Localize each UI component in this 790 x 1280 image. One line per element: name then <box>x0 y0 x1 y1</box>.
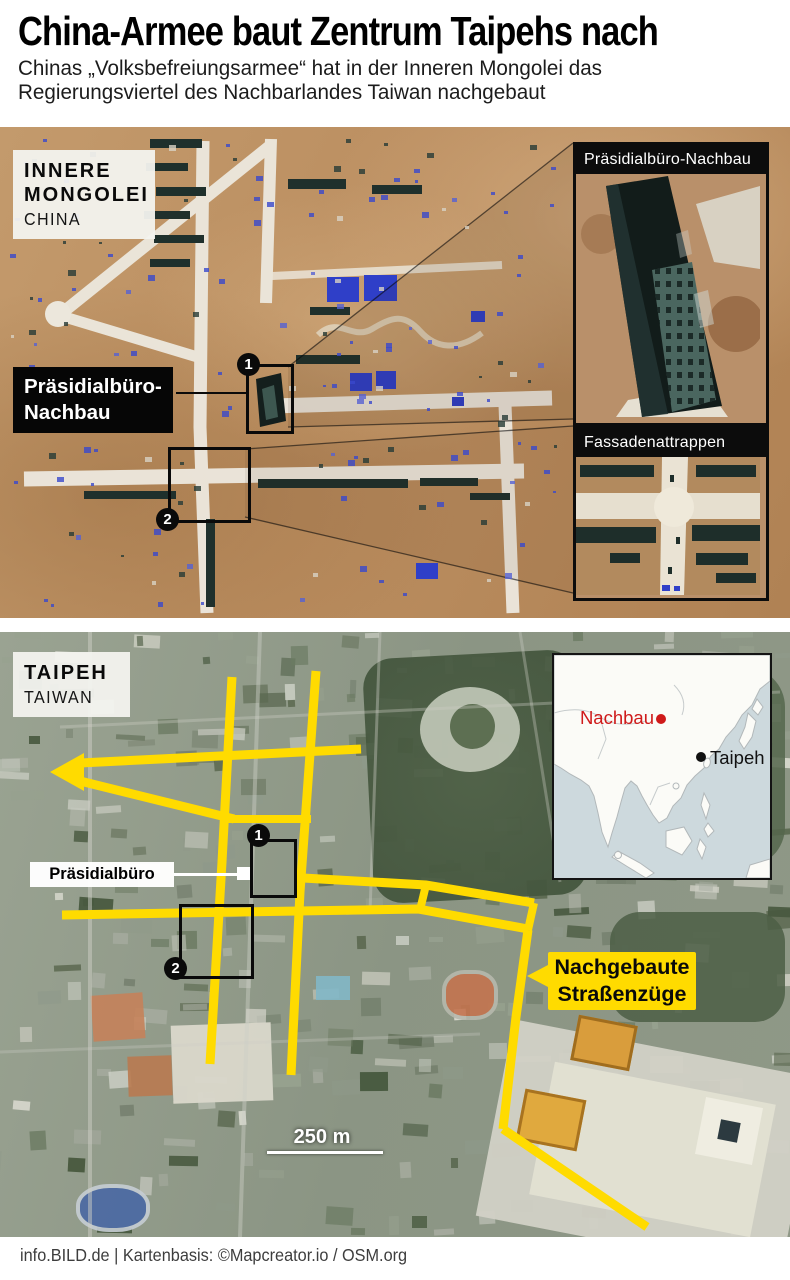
label-connector-square <box>237 867 250 880</box>
taipei-location-dot <box>696 752 706 762</box>
inset-replica-building-image <box>576 174 760 417</box>
satellite-map-inner-mongolia: INNERE MONGOLEI CHINA Präsidialbüro- Nac… <box>0 127 790 618</box>
replica-location-dot <box>656 714 666 724</box>
region-label-inner-mongolia: INNERE MONGOLEI CHINA <box>13 150 155 239</box>
inset-replica-building: Präsidialbüro-Nachbau <box>573 142 769 426</box>
region-country: CHINA <box>24 209 134 230</box>
inset-facade-mockups-title: Fassadenattrappen <box>576 428 766 457</box>
replica-callout-label: Präsidialbüro- Nachbau <box>13 367 173 433</box>
replica-callout-line2: Nachbau <box>24 400 162 426</box>
marker-2-badge: 2 <box>164 957 187 980</box>
marker-2-badge: 2 <box>156 508 179 531</box>
replicated-streets-line2: Straßenzüge <box>548 981 696 1008</box>
replica-site-2-rectangle <box>168 447 251 523</box>
region-label-taipei: TAIPEH TAIWAN <box>13 652 130 717</box>
replicated-streets-line1: Nachgebaute <box>548 954 696 981</box>
infographic-page: China-Armee baut Zentrum Taipehs nach Ch… <box>0 0 790 1280</box>
marker-1-badge: 1 <box>237 353 260 376</box>
inset-replica-building-title: Präsidialbüro-Nachbau <box>576 145 766 174</box>
subtitle-line-1: Chinas „Volksbefreiungsarmee“ hat in der… <box>18 56 602 80</box>
taipei-location-label: Taipeh <box>710 747 765 769</box>
satellite-map-taipei: TAIPEH TAIWAN Präsidialbüro 1 2 Nachgeba… <box>0 632 790 1237</box>
credit-line: info.BILD.de | Kartenbasis: ©Mapcreator.… <box>20 1245 407 1266</box>
subtitle-line-2: Regierungsviertel des Nachbarlandes Taiw… <box>18 80 602 104</box>
original-site-2-rectangle <box>179 904 254 979</box>
page-subtitle: Chinas „Volksbefreiungsarmee“ hat in der… <box>18 56 602 104</box>
asia-locator-map: Nachbau Taipeh <box>552 653 772 880</box>
region-name-line2: MONGOLEI <box>24 183 144 207</box>
city-country: TAIWAN <box>24 687 111 708</box>
inset-facade-mockups: Fassadenattrappen <box>573 425 769 601</box>
replica-location-label: Nachbau <box>574 707 654 729</box>
replica-callout-line1: Präsidialbüro- <box>24 374 162 400</box>
region-name-line1: INNERE <box>24 159 144 183</box>
replicated-streets-label: Nachgebaute Straßenzüge <box>548 952 696 1010</box>
label-pointer-icon <box>527 965 548 987</box>
scale-bar <box>267 1151 383 1154</box>
marker-1-badge: 1 <box>247 824 270 847</box>
label-connector-line <box>174 873 237 876</box>
street-arrow-icon <box>50 753 84 791</box>
inset-facade-mockups-image <box>576 457 760 595</box>
city-name: TAIPEH <box>24 661 119 685</box>
scale-label: 250 m <box>270 1126 374 1149</box>
presidential-office-label: Präsidialbüro <box>30 862 174 887</box>
callout-connector-line <box>176 392 247 394</box>
original-site-1-rectangle <box>250 839 297 898</box>
page-title: China-Armee baut Zentrum Taipehs nach <box>18 8 658 55</box>
footer: info.BILD.de | Kartenbasis: ©Mapcreator.… <box>0 1237 790 1280</box>
